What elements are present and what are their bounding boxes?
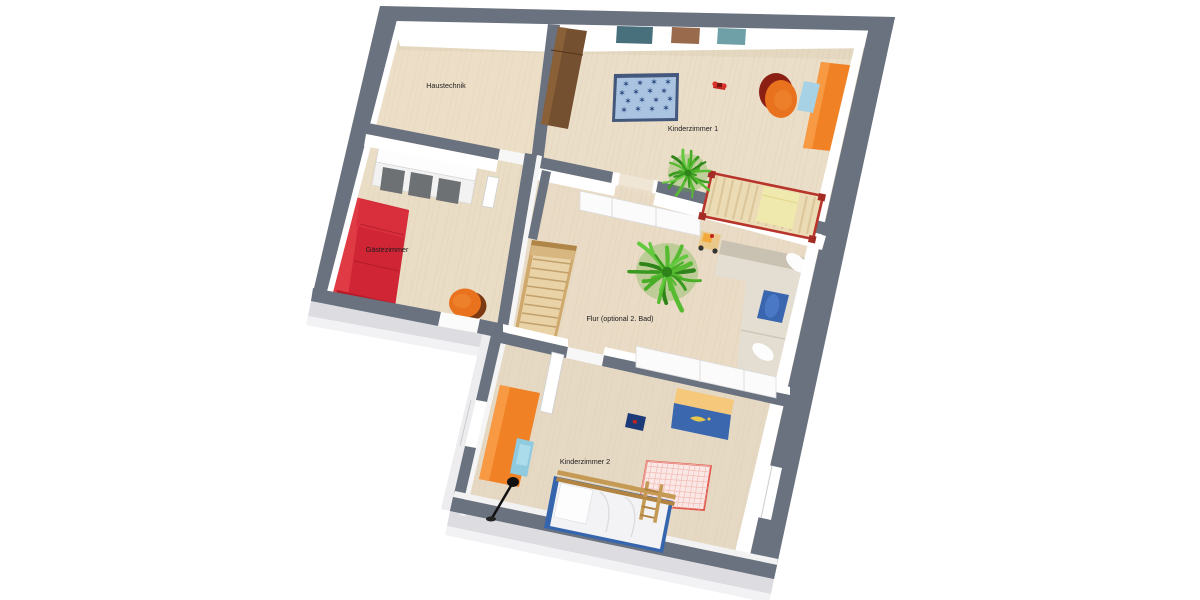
svg-text:✶: ✶ xyxy=(648,104,656,114)
svg-text:✶: ✶ xyxy=(620,105,628,115)
svg-text:Gästezimmer: Gästezimmer xyxy=(366,245,409,254)
svg-text:Flur (optional 2. Bad): Flur (optional 2. Bad) xyxy=(586,314,653,323)
svg-text:Kinderzimmer 2: Kinderzimmer 2 xyxy=(560,457,610,466)
svg-text:✶: ✶ xyxy=(662,103,670,113)
svg-text:Kinderzimmer 1: Kinderzimmer 1 xyxy=(668,124,718,133)
svg-text:✶: ✶ xyxy=(634,104,642,114)
svg-text:Haustechnik: Haustechnik xyxy=(426,81,466,90)
